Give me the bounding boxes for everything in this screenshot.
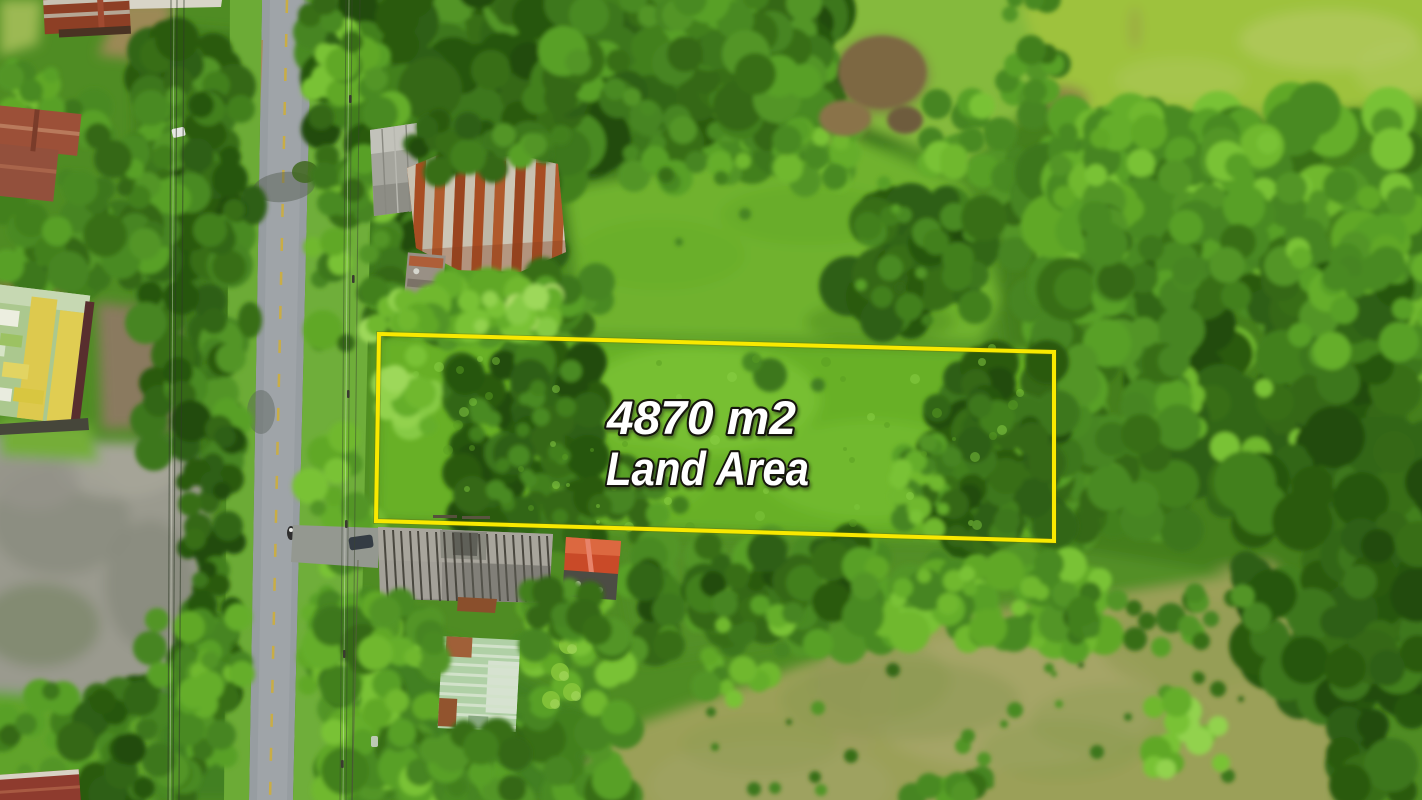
svg-text:4870 m2: 4870 m2 [606, 391, 796, 444]
svg-text:Land Area: Land Area [606, 442, 809, 495]
